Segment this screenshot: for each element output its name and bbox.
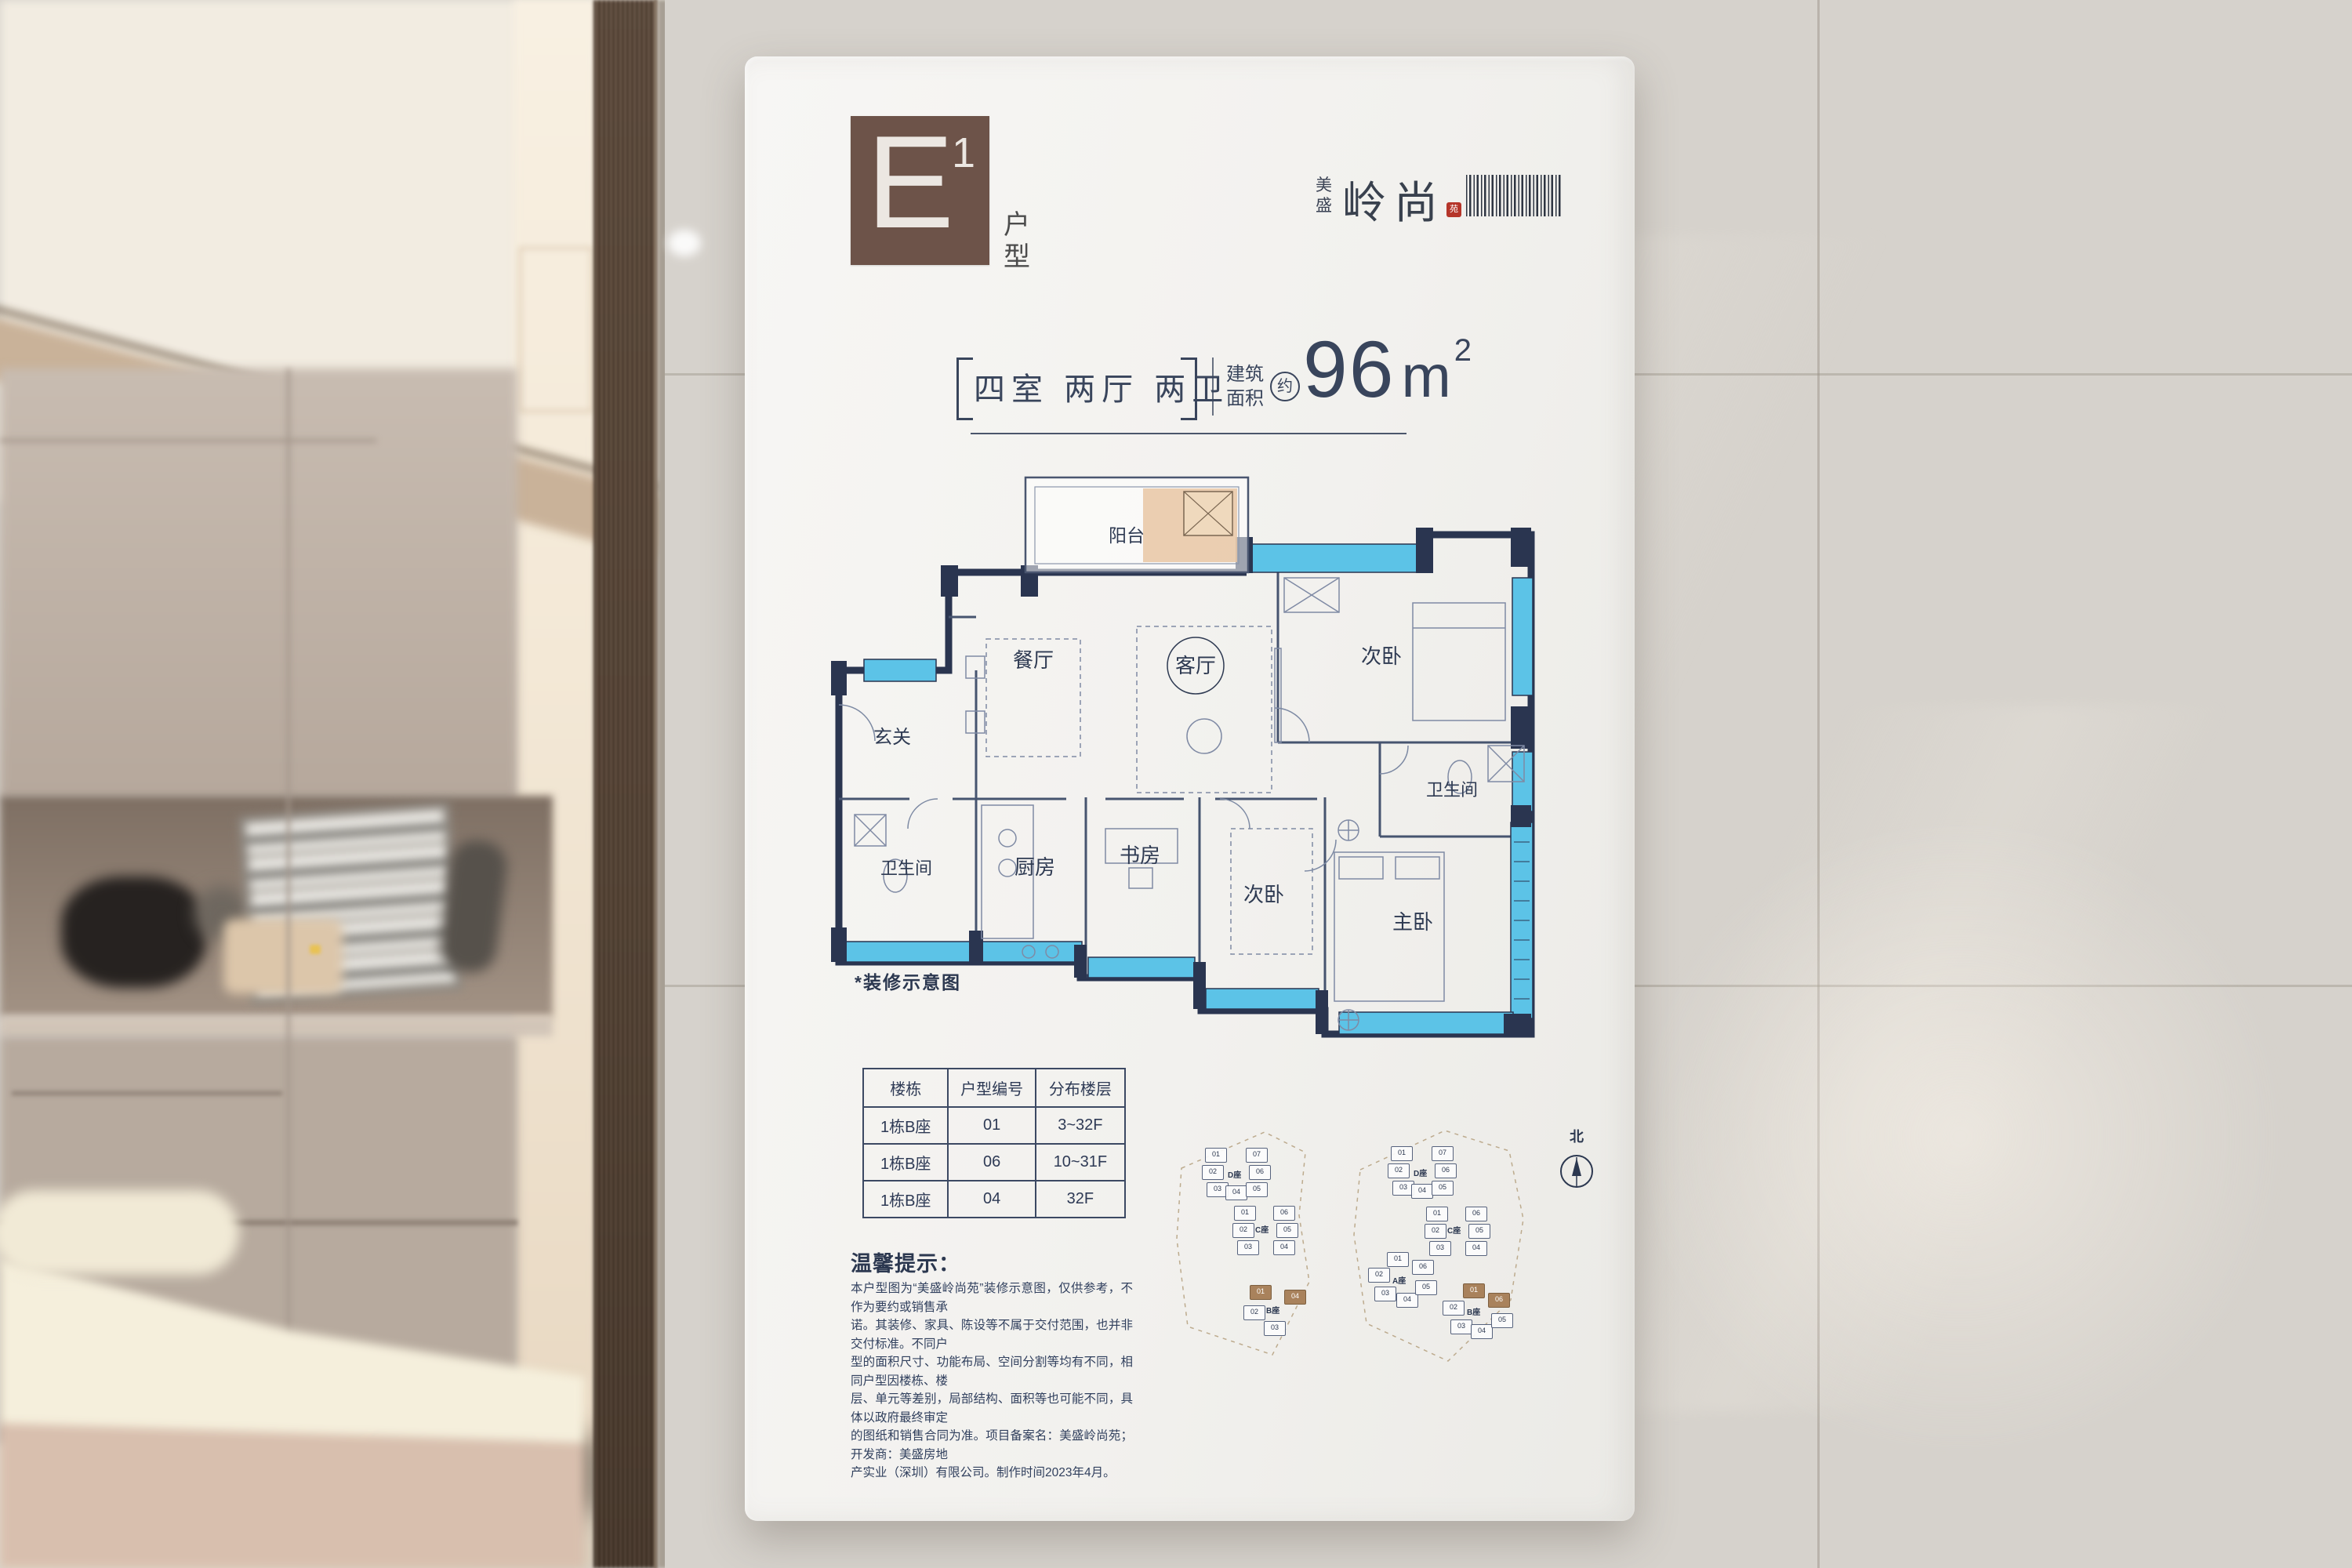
unit-type-logo: E 1 [851,116,989,265]
site-unit-06: 06 [1435,1163,1457,1178]
shelf-edge [0,1016,553,1036]
site-unit-06: 06 [1273,1206,1295,1221]
site-unit-05: 05 [1276,1223,1298,1238]
photo-of-floorplan-poster: E 1 户型 美盛 岭尚 苑 四室 两厅 两卫 建筑面积 约 96 m 2 [0,0,2352,1568]
drawer-handle-line [12,1091,282,1095]
area-label: 建筑面积 [1226,362,1267,411]
wall-trim-panel [519,247,593,412]
site-unit-02: 02 [1232,1223,1254,1238]
site-unit-06: 06 [1249,1165,1271,1180]
table-header-row: 楼栋 户型编号 分布楼层 [863,1069,1125,1107]
plan-room-master: 主卧 [1392,910,1433,934]
brand-prefix: 美盛 [1316,176,1334,217]
table-row: 1栋B座 01 3~32F [863,1107,1125,1144]
header-rule [971,433,1406,434]
area-superscript: 2 [1454,335,1472,366]
brand-name: 岭尚 [1342,168,1446,231]
light-reflection [668,230,701,256]
site-unit-05: 05 [1415,1280,1437,1295]
cabinet-upper [0,368,517,798]
unit-code-number: 1 [952,129,975,177]
cell-floors: 10~31F [1036,1144,1125,1181]
site-unit-01: 01 [1426,1207,1448,1221]
site-unit-01: 01 [1205,1148,1227,1163]
site-unit-01: 01 [1250,1285,1272,1300]
col-building: 楼栋 [863,1069,948,1107]
bracket-right [1181,358,1197,420]
site-unit-01: 01 [1463,1283,1485,1298]
bench-pillow [0,1190,239,1275]
site-unit-03: 03 [1429,1241,1451,1256]
area-unit: m [1401,347,1450,407]
plan-room-bedroom2: 次卧 [1361,644,1402,668]
approx-circle: 约 [1270,372,1300,401]
table-row: 1栋B座 04 32F [863,1181,1125,1218]
bracket-left [956,358,973,420]
plan-room-living: 客厅 [1175,654,1216,677]
site-unit-07: 07 [1432,1146,1454,1161]
cell-unit: 04 [948,1181,1035,1218]
site-unit-04: 04 [1225,1185,1247,1200]
site-cluster-label: C座 [1447,1224,1461,1236]
plan-room-balcony: 阳台 [1109,525,1145,546]
site-unit-02: 02 [1243,1305,1265,1320]
unit-type-label: 户型 [1004,209,1036,274]
site-unit-03: 03 [1450,1319,1472,1334]
plan-room-foyer: 玄关 [873,727,911,748]
site-cluster-label: A座 [1392,1274,1406,1286]
site-unit-02: 02 [1368,1268,1390,1283]
floor-distribution-table: 楼栋 户型编号 分布楼层 1栋B座 01 3~32F 1栋B座 06 10~31… [862,1068,1126,1218]
plan-room-kitchen: 厨房 [1014,855,1055,879]
plan-room-dining: 餐厅 [1013,648,1054,672]
site-cluster-label: B座 [1266,1304,1279,1316]
col-unit-number: 户型编号 [948,1069,1035,1107]
cell-building: 1栋B座 [863,1181,948,1218]
site-building-clusters: 01020304050607D座010203040506C座01040203B座… [1172,1121,1611,1380]
site-plans: 北 01020304050607D座010203040506C座01040203… [1172,1121,1611,1380]
site-cluster-label: D座 [1414,1167,1427,1178]
cell-floors: 3~32F [1036,1107,1125,1144]
site-unit-02: 02 [1425,1224,1446,1239]
site-unit-04: 04 [1396,1293,1418,1308]
unit-code-letter: E [866,110,951,255]
cabinet-groove [0,439,376,442]
site-unit-02: 02 [1388,1163,1410,1178]
site-unit-06: 06 [1412,1260,1434,1275]
site-unit-01: 01 [1391,1146,1413,1161]
logo-barcode [1466,175,1562,216]
daybed-bench [0,1239,584,1568]
site-unit-01: 01 [1387,1252,1409,1267]
site-unit-05: 05 [1432,1181,1454,1196]
table-row: 1栋B座 06 10~31F [863,1144,1125,1181]
handbag-object [223,919,343,994]
floorplan-poster: E 1 户型 美盛 岭尚 苑 四室 两厅 两卫 建筑面积 约 96 m 2 [745,56,1635,1521]
col-floors: 分布楼层 [1036,1069,1125,1107]
door-jamb-grain [593,0,657,1568]
cell-floors: 32F [1036,1181,1125,1218]
plan-room-bath1: 卫生间 [880,858,932,878]
site-unit-06: 06 [1488,1293,1510,1308]
site-unit-04: 04 [1465,1241,1487,1256]
spec-divider [1212,358,1214,416]
cell-unit: 06 [948,1144,1035,1181]
site-unit-04: 04 [1471,1324,1493,1339]
site-unit-01: 01 [1234,1206,1256,1221]
area-number: 96 [1303,329,1395,409]
handbag-clasp [310,945,321,954]
brand-seal-icon: 苑 [1446,202,1461,217]
site-unit-02: 02 [1443,1301,1465,1316]
cell-unit: 01 [948,1107,1035,1144]
plan-room-study: 书房 [1120,844,1160,867]
plan-room-bath2: 卫生间 [1426,780,1478,800]
site-unit-03: 03 [1237,1240,1259,1255]
site-unit-05: 05 [1468,1224,1490,1239]
site-unit-04: 04 [1411,1184,1433,1199]
plan-room-bedroom3: 次卧 [1243,883,1284,906]
site-cluster-label: B座 [1467,1305,1480,1317]
site-unit-06: 06 [1465,1207,1487,1221]
site-unit-02: 02 [1202,1165,1224,1180]
site-unit-05: 05 [1491,1313,1513,1328]
plan-note: *装修示意图 [855,967,961,994]
camera-object [61,877,206,988]
site-unit-03: 03 [1374,1287,1396,1301]
site-unit-03: 03 [1264,1321,1286,1336]
site-unit-04: 04 [1273,1240,1295,1255]
tips-title: 温馨提示： [851,1247,960,1277]
site-cluster-label: C座 [1255,1223,1269,1235]
site-unit-05: 05 [1246,1182,1268,1197]
site-cluster-label: D座 [1228,1168,1241,1180]
site-unit-04: 04 [1284,1290,1306,1305]
wall-sheen [1607,823,2313,1450]
area-value: 96 m 2 [1303,329,1468,409]
site-unit-07: 07 [1246,1148,1268,1163]
interior-scene [0,0,776,1568]
cell-building: 1栋B座 [863,1144,948,1181]
tips-body: 本户型图为“美盛岭尚苑”装修示意图，仅供参考，不作为要约或销售承 诺。其装修、家… [851,1279,1133,1483]
cell-building: 1栋B座 [863,1107,948,1144]
